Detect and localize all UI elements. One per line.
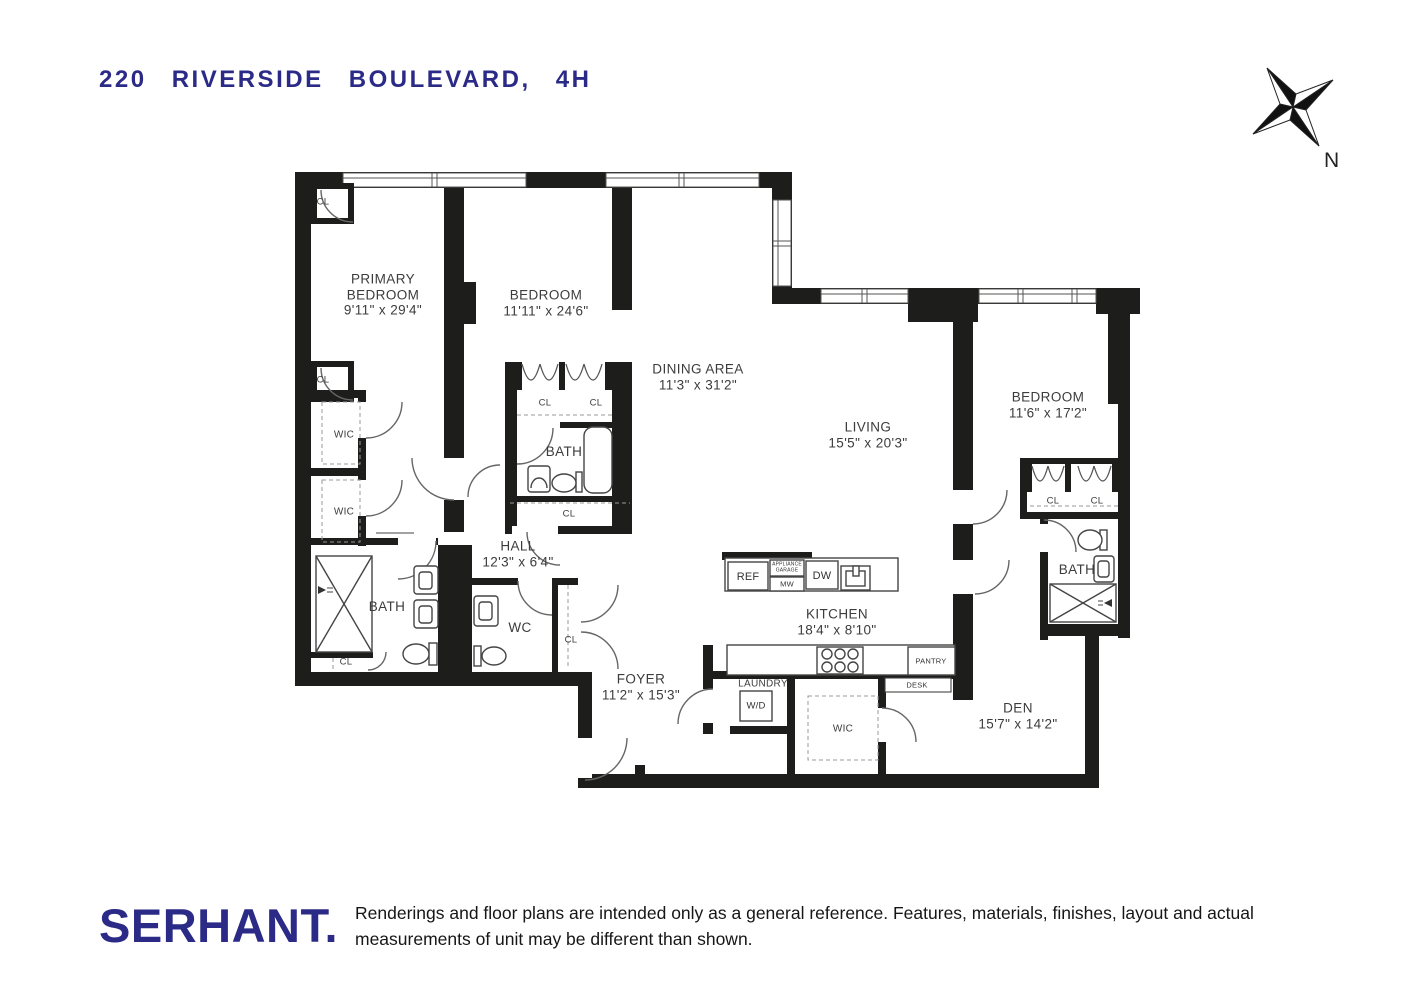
microwave-label: MW	[780, 580, 794, 589]
wic-label: WIC	[334, 507, 354, 518]
closet-label: CL	[317, 375, 330, 386]
room-label-bedroom3-bath: BATH	[1059, 562, 1096, 578]
floorplan-page: 220 RIVERSIDE BOULEVARD, 4H N PRIMARY BE…	[0, 0, 1415, 1000]
room-label-primary-bath: BATH	[369, 599, 406, 615]
door-arc	[973, 490, 1007, 524]
room-label-primary-bedroom: PRIMARY BEDROOM 9'11" x 29'4"	[327, 272, 439, 319]
room-label-foyer: FOYER 11'2" x 15'3"	[602, 671, 680, 702]
sink-icon	[1094, 556, 1114, 582]
room-label-bedroom-3: BEDROOM 11'6" x 17'2"	[1009, 389, 1087, 420]
closet-label: CL	[1091, 496, 1104, 507]
room-name: LIVING	[828, 419, 907, 435]
window	[821, 289, 908, 303]
closet-label: CL	[317, 197, 330, 208]
room-label-wc: WC	[508, 620, 531, 636]
room-dims: 9'11" x 29'4"	[327, 303, 439, 319]
walls	[295, 172, 1140, 788]
room-name: PRIMARY BEDROOM	[327, 272, 439, 303]
kitchen-sink-icon	[841, 566, 870, 590]
toilet-icon	[474, 646, 506, 666]
window	[606, 173, 759, 187]
room-dims: 12'3" x 6'4"	[482, 554, 553, 570]
room-dims: 11'6" x 17'2"	[1009, 405, 1087, 421]
door-arc	[882, 708, 916, 742]
washer-dryer-label: W/D	[746, 701, 765, 712]
compass-north-label: N	[1324, 149, 1339, 173]
closet-label: CL	[565, 635, 578, 646]
room-label-dining-area: DINING AREA 11'3" x 31'2"	[652, 361, 743, 392]
page-title: 220 RIVERSIDE BOULEVARD, 4H	[99, 66, 591, 94]
room-name: DEN	[978, 700, 1057, 716]
room-label-hall: HALL 12'3" x 6'4"	[482, 538, 553, 569]
disclaimer-text: Renderings and floor plans are intended …	[355, 901, 1323, 953]
closet-label: CL	[563, 509, 576, 520]
refrigerator-label: REF	[737, 571, 760, 583]
door-arc	[518, 581, 552, 615]
appliance-garage-label: APPLIANCE GARAGE	[771, 563, 804, 574]
door-arc	[581, 632, 618, 669]
room-label-laundry: LAUNDRY	[738, 679, 788, 690]
room-label-living: LIVING 15'5" x 20'3"	[828, 419, 907, 450]
room-name: KITCHEN	[797, 606, 876, 622]
sink-icon	[474, 596, 498, 626]
cooktop-icon	[817, 647, 863, 674]
door-arc	[581, 585, 618, 622]
wic-label: WIC	[833, 724, 853, 735]
window	[773, 200, 791, 286]
bathtub-icon	[584, 427, 612, 493]
room-name: FOYER	[602, 671, 680, 687]
dishwasher-label: DW	[813, 570, 832, 582]
room-label-bedroom-2: BEDROOM 11'11" x 24'6"	[503, 287, 588, 318]
room-name: DINING AREA	[652, 361, 743, 377]
floor-plan-drawing	[0, 0, 1415, 1000]
room-dims: 11'11" x 24'6"	[503, 303, 588, 319]
toilet-icon	[403, 643, 437, 665]
door-arc	[1044, 520, 1076, 552]
closet-label: CL	[1047, 496, 1060, 507]
pantry-label: PANTRY	[916, 657, 947, 666]
sink-icon	[528, 466, 550, 492]
room-dims: 11'3" x 31'2"	[652, 377, 743, 393]
room-label-den: DEN 15'7" x 14'2"	[978, 700, 1057, 731]
window	[343, 173, 526, 187]
wic-label: WIC	[334, 430, 354, 441]
room-label-kitchen: KITCHEN 18'4" x 8'10"	[797, 606, 876, 637]
sink-icon	[414, 600, 438, 628]
room-dims: 15'7" x 14'2"	[978, 716, 1057, 732]
compass-icon	[1253, 68, 1333, 146]
window	[979, 289, 1096, 303]
sink-icon	[414, 566, 438, 594]
room-name: BEDROOM	[1009, 389, 1087, 405]
serhant-logo: SERHANT.	[99, 898, 338, 953]
bathtub-icon	[316, 556, 372, 652]
toilet-icon	[552, 472, 582, 492]
closet-label: CL	[340, 657, 353, 668]
door-arc	[366, 402, 402, 438]
desk-label: DESK	[906, 681, 927, 690]
room-label-hall-bath: BATH	[546, 444, 583, 460]
room-dims: 18'4" x 8'10"	[797, 622, 876, 638]
door-arc	[975, 560, 1009, 594]
door-arc	[366, 480, 402, 516]
room-name: BEDROOM	[503, 287, 588, 303]
toilet-icon	[1078, 530, 1107, 550]
bathtub-icon	[1050, 584, 1116, 622]
room-dims: 15'5" x 20'3"	[828, 435, 907, 451]
room-name: HALL	[482, 538, 553, 554]
closet-label: CL	[590, 398, 603, 409]
room-dims: 11'2" x 15'3"	[602, 687, 680, 703]
closet-label: CL	[539, 398, 552, 409]
door-arc	[468, 465, 500, 497]
